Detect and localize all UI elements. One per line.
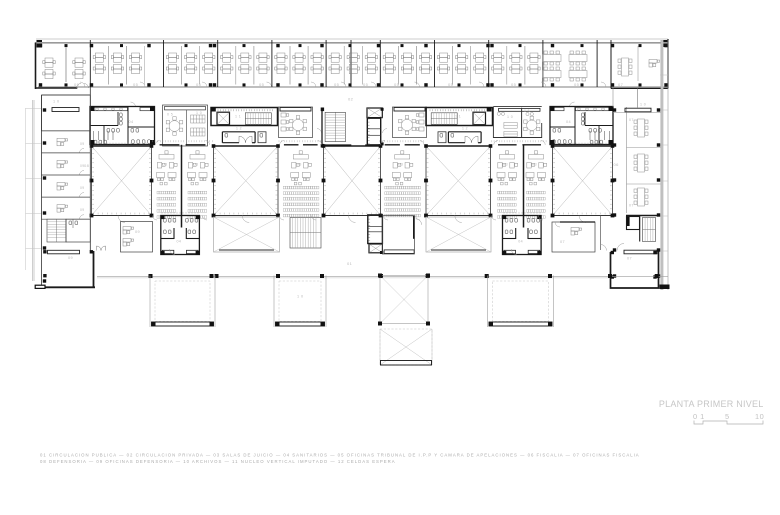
svg-text:09: 09 [135, 230, 140, 234]
svg-text:10: 10 [755, 412, 764, 421]
svg-text:03: 03 [163, 163, 168, 167]
svg-text:09: 09 [74, 82, 80, 87]
svg-text:07: 07 [618, 82, 624, 87]
svg-text:07: 07 [560, 240, 565, 244]
svg-text:06: 06 [614, 162, 620, 167]
svg-text:09: 09 [68, 256, 73, 260]
svg-text:08: 08 [84, 163, 90, 168]
svg-text:02: 02 [348, 97, 354, 102]
svg-text:09: 09 [80, 142, 85, 146]
svg-text:05: 05 [574, 82, 580, 87]
svg-text:03: 03 [398, 163, 403, 167]
svg-text:05: 05 [394, 82, 400, 87]
svg-text:1 0: 1 0 [297, 295, 303, 299]
svg-text:07: 07 [629, 118, 634, 122]
svg-text:03: 03 [297, 163, 302, 167]
svg-text:1 2: 1 2 [462, 127, 468, 131]
svg-text:04: 04 [566, 120, 571, 124]
svg-text:5: 5 [725, 412, 730, 421]
svg-text:05: 05 [448, 82, 454, 87]
svg-text:09: 09 [80, 186, 85, 190]
svg-text:1 0: 1 0 [507, 115, 513, 119]
svg-text:08 DEFENSORIA — 09 OFICI: 08 DEFENSORIA — 09 OFICINAS DEFENSORIA —… [40, 459, 396, 464]
svg-text:05: 05 [133, 82, 139, 87]
svg-text:01 CIRCULACION PUBLICA —: 01 CIRCULACION PUBLICA — 02 CIRCULACION … [40, 453, 640, 458]
svg-text:0 1: 0 1 [693, 412, 705, 421]
svg-text:05: 05 [363, 82, 369, 87]
svg-text:01: 01 [347, 261, 353, 266]
svg-text:03: 03 [503, 163, 508, 167]
svg-text:05: 05 [196, 82, 202, 87]
svg-text:04: 04 [129, 120, 134, 124]
svg-text:07: 07 [629, 204, 634, 208]
svg-text:05: 05 [334, 82, 340, 87]
svg-text:PLANTA PRIMER NIVEL: PLANTA PRIMER NIVEL [659, 399, 764, 409]
svg-text:03: 03 [194, 163, 199, 167]
svg-text:04: 04 [177, 240, 182, 244]
svg-text:05: 05 [511, 82, 517, 87]
svg-text:1 1: 1 1 [235, 115, 241, 119]
svg-text:0 5: 0 5 [524, 109, 530, 113]
svg-text:1 1: 1 1 [455, 115, 461, 119]
svg-text:1 0: 1 0 [640, 103, 646, 107]
svg-text:05: 05 [259, 82, 265, 87]
svg-text:1 2: 1 2 [236, 127, 242, 131]
svg-text:04: 04 [518, 240, 523, 244]
svg-text:03: 03 [532, 163, 537, 167]
svg-text:07: 07 [627, 257, 632, 261]
svg-text:1 0: 1 0 [196, 111, 202, 115]
svg-text:0 5: 0 5 [167, 113, 173, 117]
svg-text:1 0: 1 0 [53, 100, 59, 104]
svg-text:09: 09 [80, 208, 85, 212]
